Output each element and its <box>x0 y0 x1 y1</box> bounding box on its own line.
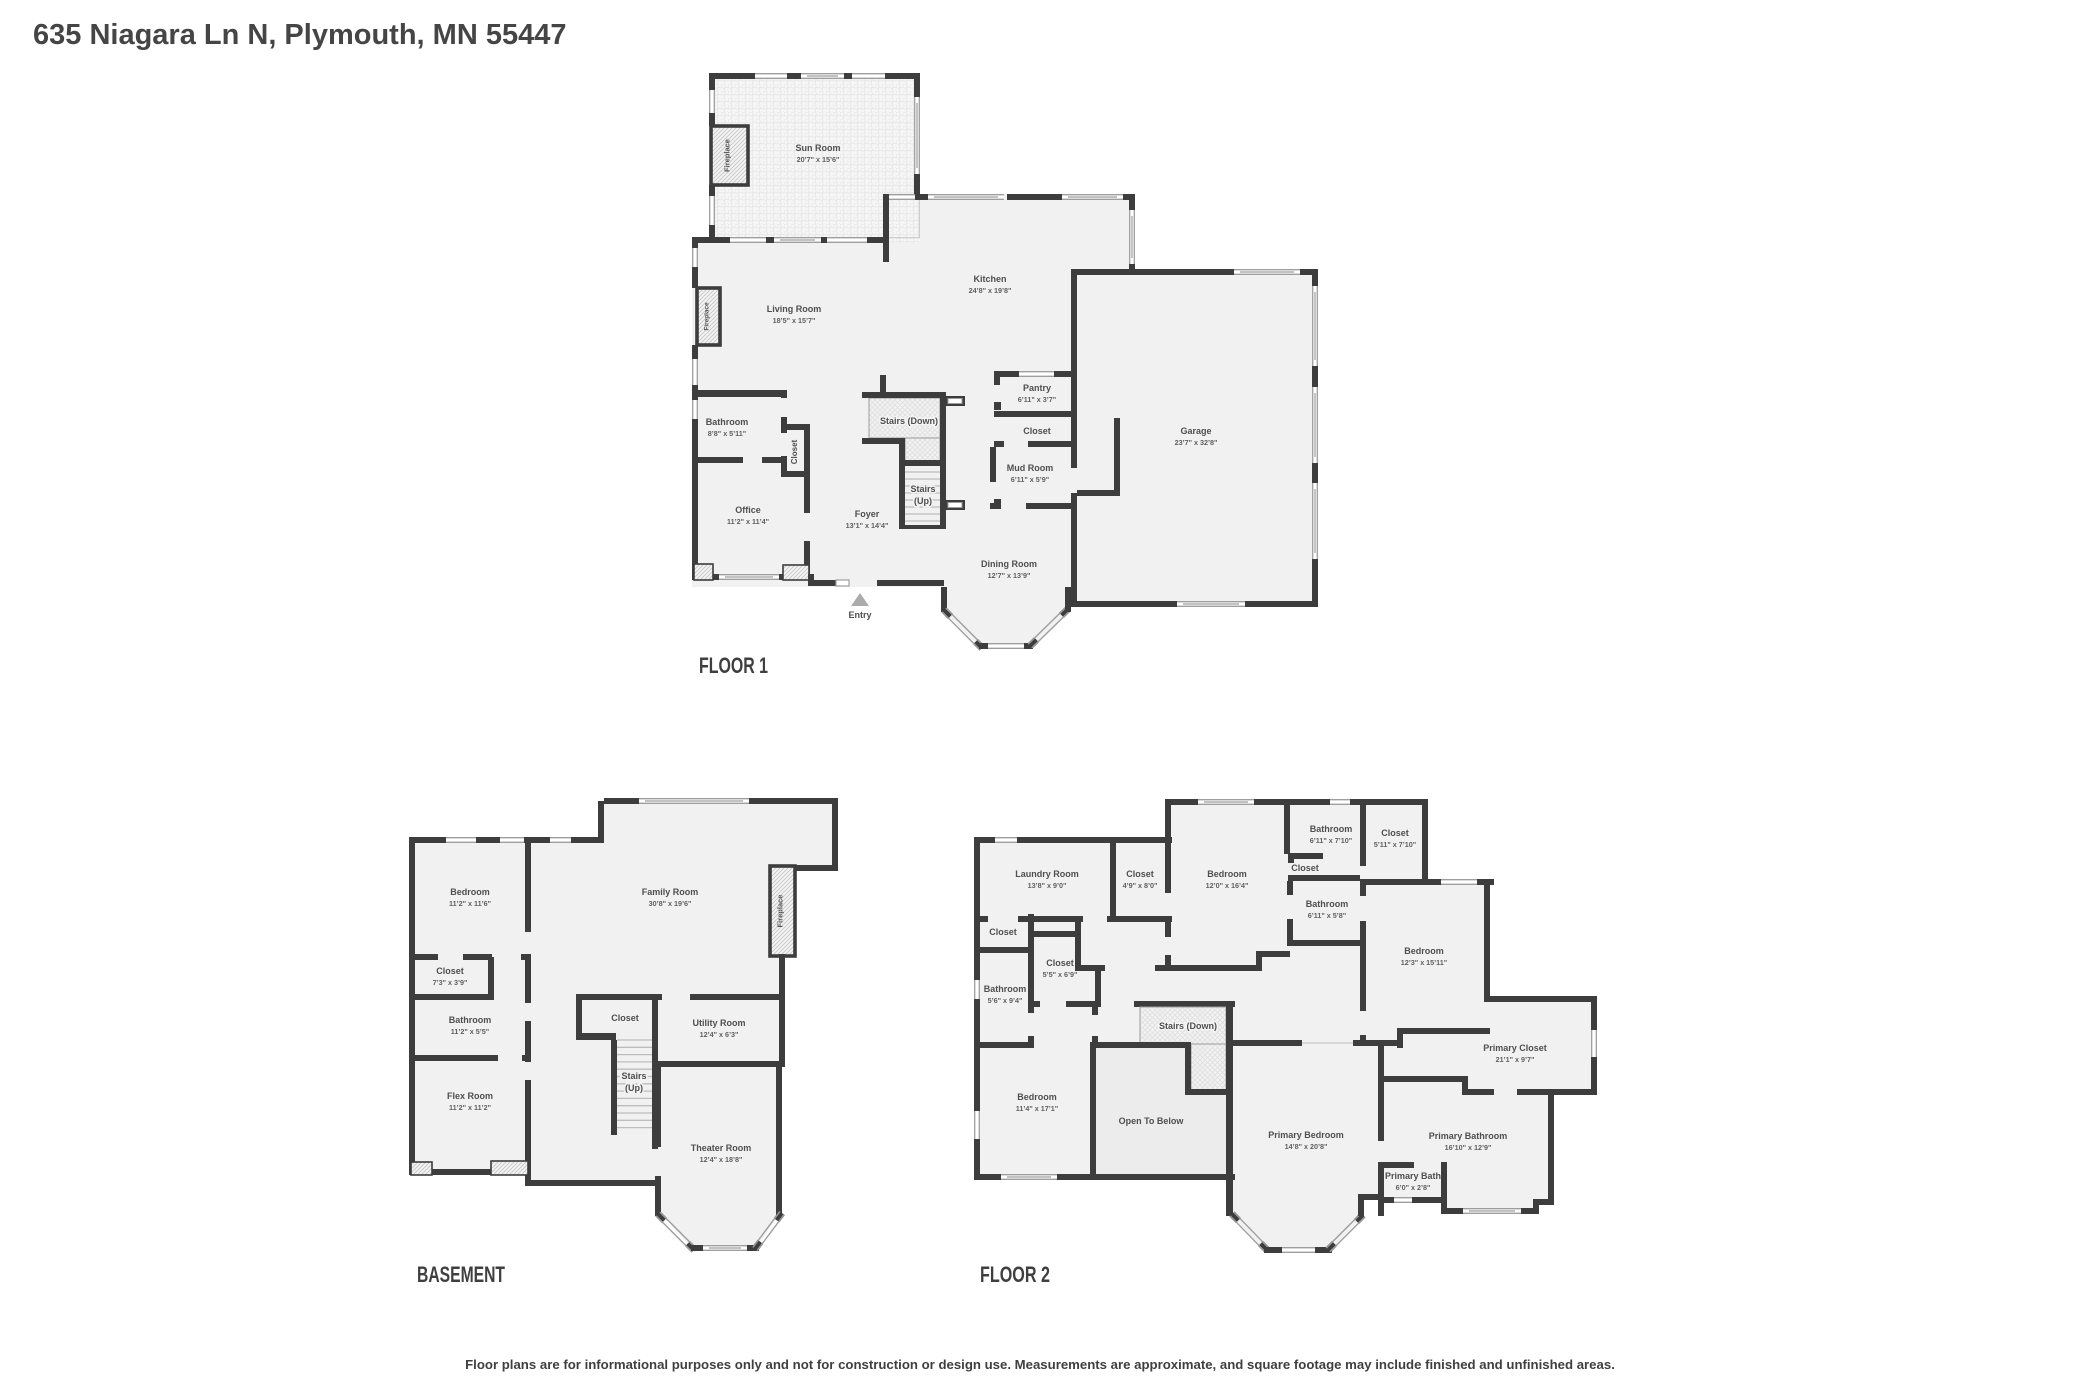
svg-text:7’3" x 3’9": 7’3" x 3’9" <box>433 978 468 987</box>
svg-text:Dining Room: Dining Room <box>981 559 1037 569</box>
svg-text:Entry: Entry <box>848 610 871 620</box>
svg-text:Bedroom: Bedroom <box>450 887 490 897</box>
svg-text:Closet: Closet <box>1291 863 1319 873</box>
svg-text:4’9" x 8’0": 4’9" x 8’0" <box>1123 881 1158 890</box>
svg-text:6’11" x 3’7": 6’11" x 3’7" <box>1018 395 1056 404</box>
svg-text:Office: Office <box>735 505 761 515</box>
svg-text:11’2" x 11’6": 11’2" x 11’6" <box>449 899 491 908</box>
svg-text:Bathroom: Bathroom <box>984 984 1027 994</box>
svg-text:Stairs: Stairs <box>910 484 935 494</box>
svg-text:30’8" x 19’6": 30’8" x 19’6" <box>649 899 692 908</box>
svg-text:12’7" x 13’9": 12’7" x 13’9" <box>988 571 1031 580</box>
svg-text:635 Niagara Ln N, Plymouth, MN: 635 Niagara Ln N, Plymouth, MN 55447 <box>33 19 566 51</box>
svg-text:11’2" x 11’2": 11’2" x 11’2" <box>449 1103 491 1112</box>
svg-text:16’10" x 12’9": 16’10" x 12’9" <box>1445 1143 1492 1152</box>
svg-text:Floor plans are for informatio: Floor plans are for informational purpos… <box>465 1357 1615 1372</box>
svg-text:Fireplace: Fireplace <box>723 139 732 172</box>
svg-text:Stairs (Down): Stairs (Down) <box>880 416 938 426</box>
svg-text:11’2" x 5’5": 11’2" x 5’5" <box>451 1027 489 1036</box>
svg-text:6’0" x 2’8": 6’0" x 2’8" <box>1396 1183 1431 1192</box>
svg-text:13’8" x 9’0": 13’8" x 9’0" <box>1028 881 1067 890</box>
svg-text:Garage: Garage <box>1180 426 1211 436</box>
svg-text:Bedroom: Bedroom <box>1017 1092 1057 1102</box>
svg-text:(Up): (Up) <box>625 1083 643 1093</box>
svg-text:12’4" x 18’8": 12’4" x 18’8" <box>700 1155 743 1164</box>
svg-text:21’1" x 9’7": 21’1" x 9’7" <box>1496 1055 1535 1064</box>
svg-text:Mud Room: Mud Room <box>1007 463 1054 473</box>
svg-text:Bedroom: Bedroom <box>1207 869 1247 879</box>
svg-text:FLOOR 1: FLOOR 1 <box>699 653 768 678</box>
svg-text:5’6" x 9’4": 5’6" x 9’4" <box>988 996 1023 1005</box>
svg-text:Laundry Room: Laundry Room <box>1015 869 1079 879</box>
svg-text:8’8" x 5’11": 8’8" x 5’11" <box>708 429 746 438</box>
svg-text:Closet: Closet <box>989 927 1017 937</box>
svg-text:Living Room: Living Room <box>767 304 822 314</box>
svg-text:6’11" x 7’10": 6’11" x 7’10" <box>1310 836 1352 845</box>
svg-text:Stairs: Stairs <box>621 1071 646 1081</box>
svg-text:Fireplace: Fireplace <box>704 302 711 331</box>
svg-text:Primary Bathroom: Primary Bathroom <box>1429 1131 1508 1141</box>
svg-text:11’2" x 11’4": 11’2" x 11’4" <box>727 517 769 526</box>
svg-text:23’7" x 32’8": 23’7" x 32’8" <box>1175 438 1218 447</box>
svg-text:Closet: Closet <box>1381 828 1409 838</box>
svg-text:Bedroom: Bedroom <box>1404 946 1444 956</box>
svg-text:24’8" x 19’8": 24’8" x 19’8" <box>969 286 1012 295</box>
svg-text:6’11" x 5’9": 6’11" x 5’9" <box>1011 475 1049 484</box>
svg-text:Bathroom: Bathroom <box>1306 899 1349 909</box>
svg-text:12’3" x 15’11": 12’3" x 15’11" <box>1401 958 1447 967</box>
svg-text:Closet: Closet <box>436 966 464 976</box>
svg-text:Closet: Closet <box>1023 426 1051 436</box>
svg-text:Bathroom: Bathroom <box>449 1015 492 1025</box>
svg-text:Bathroom: Bathroom <box>706 417 749 427</box>
svg-text:14’8" x 20’8": 14’8" x 20’8" <box>1285 1142 1328 1151</box>
svg-text:13’1" x 14’4": 13’1" x 14’4" <box>846 521 889 530</box>
svg-text:Family Room: Family Room <box>642 887 699 897</box>
svg-text:Open To Below: Open To Below <box>1119 1116 1185 1126</box>
svg-text:BASEMENT: BASEMENT <box>417 1262 505 1287</box>
svg-text:11’4" x 17’1": 11’4" x 17’1" <box>1016 1104 1058 1113</box>
svg-text:(Up): (Up) <box>914 496 932 506</box>
svg-text:Theater Room: Theater Room <box>691 1143 752 1153</box>
svg-text:Closet: Closet <box>611 1013 639 1023</box>
svg-text:Sun Room: Sun Room <box>796 143 841 153</box>
svg-text:5’11" x 7’10": 5’11" x 7’10" <box>1374 840 1416 849</box>
svg-text:Utility Room: Utility Room <box>693 1018 746 1028</box>
svg-text:Closet: Closet <box>1126 869 1154 879</box>
svg-text:20’7" x 15’6": 20’7" x 15’6" <box>797 155 840 164</box>
svg-text:Primary Closet: Primary Closet <box>1483 1043 1547 1053</box>
svg-text:Primary Bedroom: Primary Bedroom <box>1268 1130 1344 1140</box>
svg-text:5’5" x 6’9": 5’5" x 6’9" <box>1043 970 1078 979</box>
svg-text:Closet: Closet <box>790 439 799 464</box>
svg-text:Foyer: Foyer <box>855 509 880 519</box>
svg-text:Kitchen: Kitchen <box>973 274 1006 284</box>
svg-text:Primary Bath: Primary Bath <box>1385 1171 1441 1181</box>
svg-text:6’11" x 5’8": 6’11" x 5’8" <box>1308 911 1346 920</box>
svg-text:12’0" x 16’4": 12’0" x 16’4" <box>1206 881 1249 890</box>
svg-text:Fireplace: Fireplace <box>776 895 785 928</box>
svg-text:Pantry: Pantry <box>1023 383 1051 393</box>
svg-text:Closet: Closet <box>1046 958 1074 968</box>
svg-text:FLOOR 2: FLOOR 2 <box>980 1262 1050 1287</box>
svg-text:Bathroom: Bathroom <box>1310 824 1353 834</box>
svg-text:12’4" x 6’3": 12’4" x 6’3" <box>700 1030 739 1039</box>
svg-text:18’5" x 15’7": 18’5" x 15’7" <box>773 316 816 325</box>
svg-text:Stairs (Down): Stairs (Down) <box>1159 1021 1217 1031</box>
svg-text:Flex Room: Flex Room <box>447 1091 493 1101</box>
